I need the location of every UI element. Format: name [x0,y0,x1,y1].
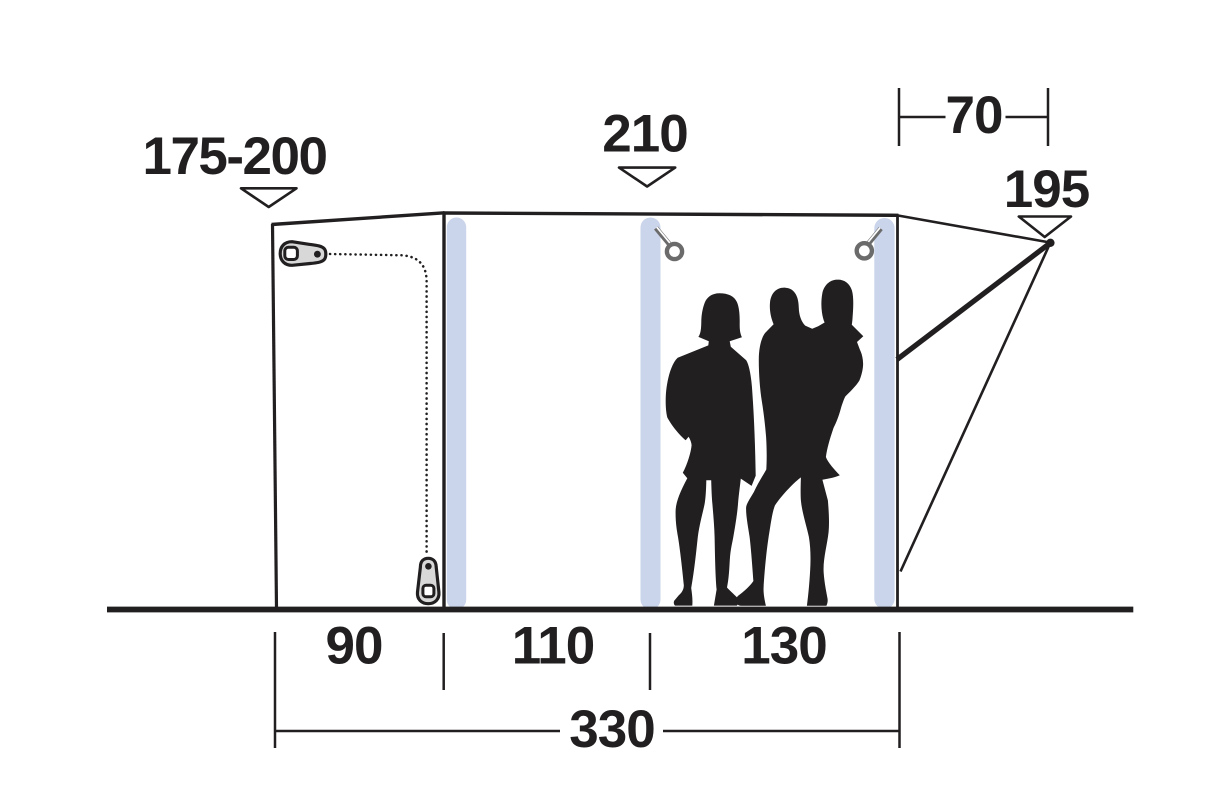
svg-text:175-200: 175-200 [142,127,326,186]
svg-text:90: 90 [326,617,383,676]
svg-text:195: 195 [1004,160,1089,219]
svg-text:130: 130 [741,617,826,676]
svg-text:210: 210 [602,105,687,164]
svg-text:330: 330 [569,700,654,759]
svg-text:70: 70 [946,86,1003,145]
svg-text:110: 110 [512,617,595,676]
